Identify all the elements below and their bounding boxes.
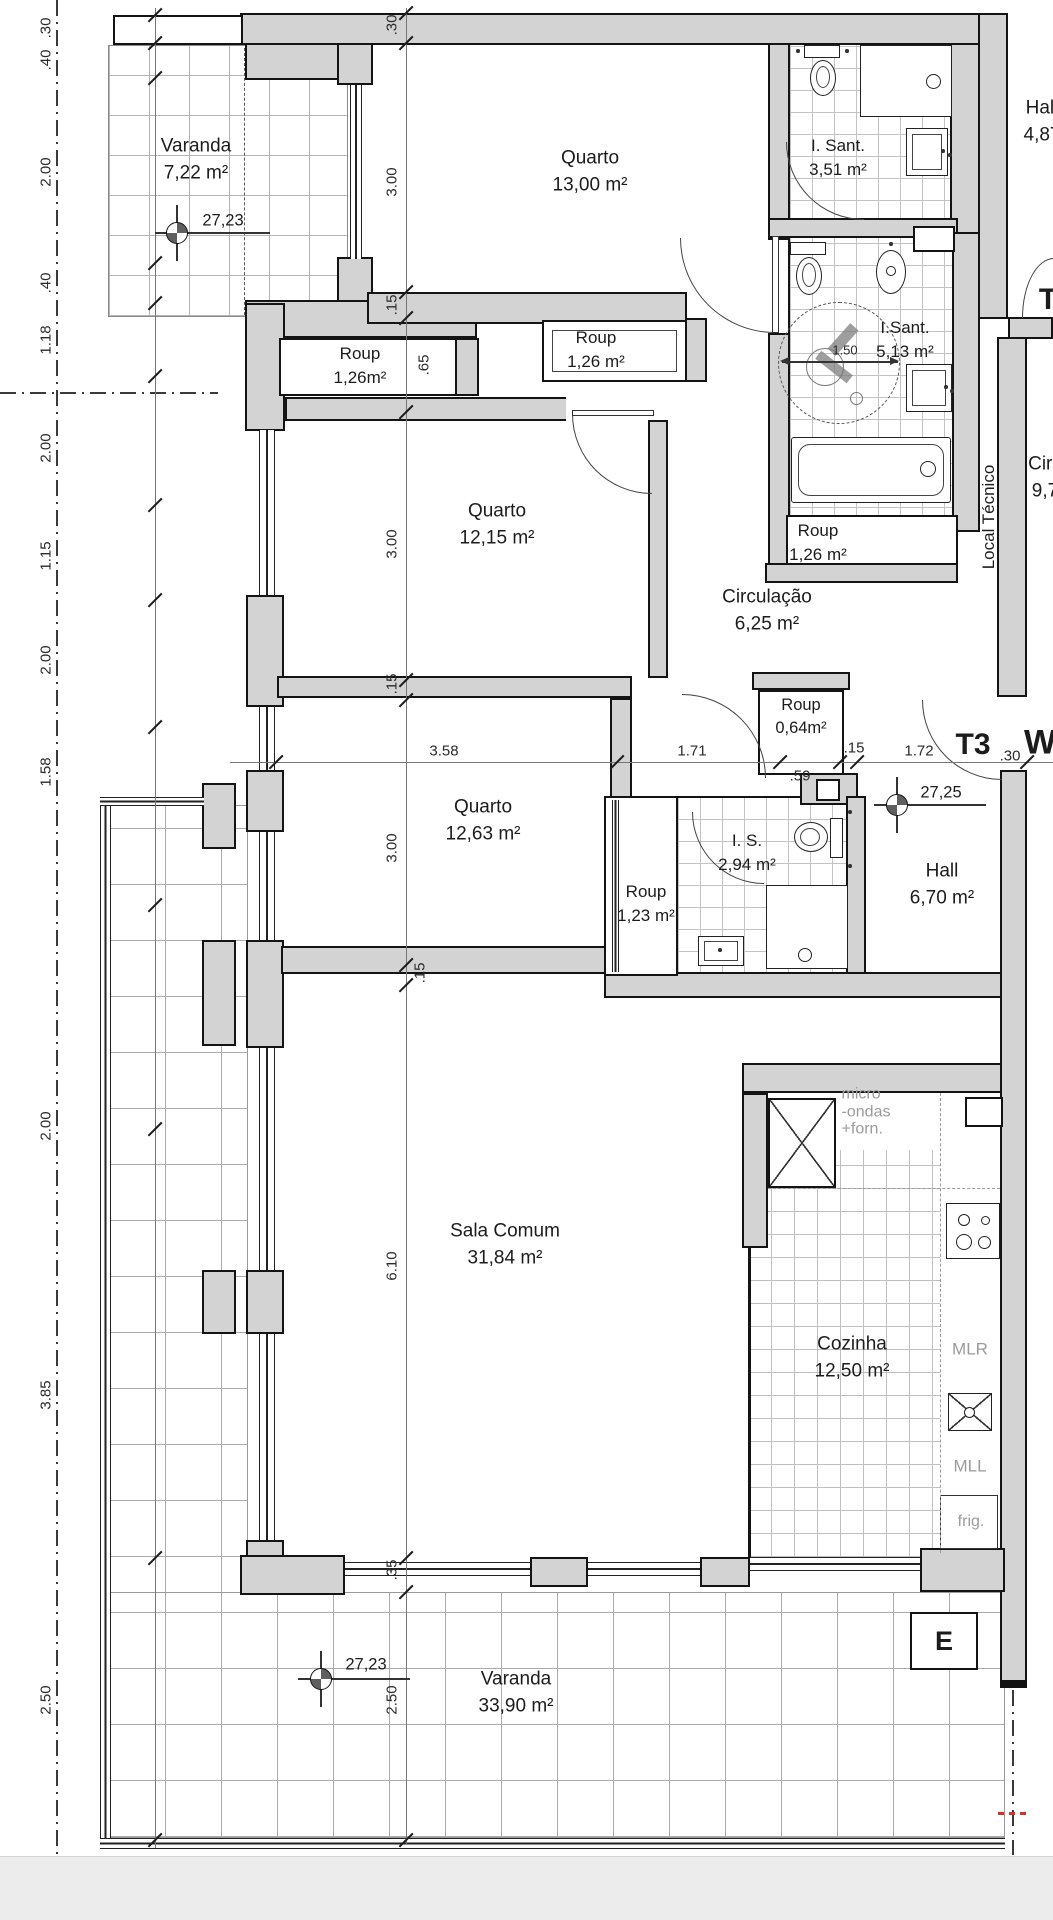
dim-label: 3.85: [38, 1380, 55, 1409]
dim-label: .40: [38, 50, 55, 71]
toilet-tank: [804, 45, 840, 58]
dim-label: 2.00: [38, 1111, 55, 1140]
level-value: 27,23: [345, 1656, 386, 1675]
toilet-tank: [790, 242, 826, 255]
room-label-local-tecnico: Local Técnico: [977, 465, 1001, 570]
room-area: 13,00 m²: [553, 172, 628, 199]
wall: [700, 1557, 750, 1587]
room-area: 3,51 m²: [809, 158, 867, 182]
room-label-varanda-bottom: Varanda 33,90 m²: [479, 1666, 554, 1719]
dim-label: 2.50: [38, 1685, 55, 1714]
room-area: 0,64m²: [775, 717, 826, 740]
dim-label: 1.15: [38, 541, 55, 570]
window: [259, 707, 275, 770]
room-area: 1,26 m²: [567, 350, 625, 374]
window: [588, 1562, 700, 1576]
wall: [246, 940, 284, 1048]
counter-dashed-line: [768, 1188, 1000, 1189]
room-name: Quarto: [460, 498, 535, 525]
bidet-drain: [886, 266, 896, 276]
kitchen-column-crossed: [768, 1098, 836, 1188]
wall: [277, 676, 632, 698]
room-label-varanda-top: Varanda 7,22 m²: [161, 133, 231, 186]
room-label-isant-351: I. Sant. 3,51 m²: [809, 134, 867, 182]
label-line: -ondas: [842, 1103, 891, 1121]
toilet-bowl-inner: [816, 66, 830, 88]
parapet: [100, 1838, 1005, 1849]
room-area: 5,13 m²: [876, 340, 934, 364]
room-area: 7,22 m²: [161, 160, 231, 187]
micro-ondas-label: micro -ondas +forn.: [842, 1086, 891, 1139]
arrowhead: [780, 357, 789, 365]
axis-line: [1012, 1690, 1014, 1855]
wall: [240, 1555, 345, 1595]
shower-drain: [926, 74, 941, 89]
window: [345, 1562, 530, 1576]
dim-label: .30: [384, 15, 401, 36]
room-name: Sala Comum: [450, 1218, 560, 1245]
room-label-quarto-1215: Quarto 12,15 m²: [460, 498, 535, 551]
kitchen-sala-boundary: [748, 1247, 751, 1557]
room-name: Roup: [775, 694, 826, 717]
dim-label: 3.00: [384, 529, 401, 558]
faucet: [718, 948, 722, 952]
wall: [920, 1548, 1005, 1592]
door-arc: [682, 694, 766, 778]
room-label-quarto-13: Quarto 13,00 m²: [553, 145, 628, 198]
room-name: I. S.: [718, 829, 776, 853]
room-name: Circulação: [722, 584, 812, 611]
unit-label-t3: T3: [955, 728, 990, 762]
elevator-label: E: [927, 1612, 961, 1670]
pilaster: [202, 940, 236, 1046]
level-value: 27,23: [202, 212, 243, 231]
room-name: Quarto: [553, 145, 628, 172]
pilaster: [202, 783, 236, 849]
axis-line: [0, 392, 218, 394]
room-area: 12,50 m²: [815, 1358, 890, 1385]
door-arc: [572, 414, 652, 494]
toilet-bowl-inner: [800, 828, 820, 846]
niche: [913, 226, 955, 252]
room-area: 1,23 m²: [617, 904, 675, 928]
dim-label: .35: [384, 1560, 401, 1581]
burner: [981, 1216, 990, 1225]
level-value: 27,25: [920, 784, 961, 803]
washer-label: MLR: [952, 1341, 988, 1360]
bathtub-drain: [920, 461, 936, 477]
window: [259, 430, 275, 595]
terrace-bottom-floor: [108, 1592, 1005, 1838]
room-name: I.Sant.: [876, 316, 934, 340]
dim-label: 3.58: [429, 743, 458, 760]
room-label-circulacao: Circulação 6,25 m²: [722, 584, 812, 637]
stove: [946, 1203, 1000, 1259]
wall: [742, 1093, 768, 1248]
dim-label: .15: [384, 295, 401, 316]
fixture-dot: [845, 49, 849, 53]
room-label-roup-mid: Roup 1,26 m²: [567, 326, 625, 374]
room-label-roup-bath: Roup 1,26 m²: [789, 519, 847, 567]
wall: [685, 318, 707, 382]
wall: [952, 232, 980, 532]
dim-label: 1.50: [832, 343, 857, 358]
fixture-dot: [848, 810, 852, 814]
room-name: Varanda: [479, 1666, 554, 1693]
burner: [956, 1234, 972, 1250]
faucet: [948, 153, 952, 157]
room-label-circ-97: Circ 9,7: [1028, 451, 1053, 504]
unit-label-w: W: [1024, 724, 1053, 763]
wall-cap: [1000, 1680, 1027, 1688]
wall: [246, 1270, 284, 1334]
faucet: [941, 149, 945, 153]
wall: [1008, 317, 1053, 339]
wall: [752, 672, 850, 690]
dim-label: 1.72: [904, 743, 933, 760]
room-area: 6,25 m²: [722, 611, 812, 638]
room-name: Cozinha: [815, 1331, 890, 1358]
room-name: Quarto: [446, 794, 521, 821]
room-area: 12,63 m²: [446, 821, 521, 848]
room-label-quarto-1263: Quarto 12,63 m²: [446, 794, 521, 847]
window: [259, 832, 275, 940]
niche: [965, 1097, 1003, 1127]
sink-inner: [912, 134, 942, 170]
dim-label: .40: [38, 273, 55, 294]
dim-line-left: [155, 8, 156, 1848]
room-name: Roup: [567, 326, 625, 350]
room-label-cozinha: Cozinha 12,50 m²: [815, 1331, 890, 1384]
parapet: [100, 797, 204, 806]
room-area: 1,26 m²: [789, 543, 847, 567]
window: [750, 1557, 920, 1571]
room-area: 9,7: [1028, 478, 1053, 505]
kitchen-sink-drain: [964, 1407, 975, 1418]
door-leaf: [572, 410, 654, 416]
niche: [816, 779, 840, 801]
room-area: 33,90 m²: [479, 1693, 554, 1720]
dim-label: .15: [412, 963, 429, 984]
room-name: Circ: [1028, 451, 1053, 478]
dim-label: .65: [416, 355, 433, 376]
window: [350, 85, 362, 259]
room-label-hall-487: Hall 4,87: [1024, 95, 1053, 148]
wall: [281, 946, 613, 974]
window: [259, 1334, 275, 1540]
wall: [337, 43, 373, 85]
burner: [958, 1214, 970, 1226]
parapet: [100, 798, 111, 1846]
fixture-dot: [889, 242, 893, 246]
fridge-label: frig.: [958, 1513, 985, 1531]
dim-label: 1.18: [38, 325, 55, 354]
burner: [978, 1236, 991, 1249]
room-area: 12,15 m²: [460, 525, 535, 552]
wall: [846, 796, 866, 976]
balcony-dashed-line: [244, 48, 245, 315]
faucet: [944, 385, 948, 389]
dim-label: 3.00: [384, 167, 401, 196]
room-label-roup-123: Roup 1,23 m²: [617, 880, 675, 928]
dim-label: 2.00: [38, 157, 55, 186]
dim-label: 3.00: [384, 833, 401, 862]
wall: [530, 1557, 588, 1587]
room-name: Roup: [789, 519, 847, 543]
dim-label: .59: [790, 768, 811, 785]
dim-line-horizontal: [230, 762, 1053, 763]
room-name: Hall: [1024, 95, 1053, 122]
fixture-dot: [796, 49, 800, 53]
label-line: micro: [842, 1086, 891, 1104]
room-label-hall-670: Hall 6,70 m²: [910, 858, 974, 911]
room-label-roup-064: Roup 0,64m²: [775, 694, 826, 740]
dim-label: 6.10: [384, 1251, 401, 1280]
dim-label: .15: [844, 740, 865, 757]
red-marks: [998, 1812, 1030, 1815]
level-marker: [886, 794, 908, 816]
room-area: 6,70 m²: [910, 885, 974, 912]
fixture-dot: [848, 864, 852, 868]
room-name: Local Técnico: [977, 465, 1001, 570]
counter-dashed-line: [940, 1093, 941, 1553]
dim-label: 1.71: [677, 743, 706, 760]
dim-label: .30: [1000, 748, 1021, 765]
room-area: 4,87: [1024, 122, 1053, 149]
wall: [950, 43, 980, 235]
floor-plan: 1.50: [0, 0, 1053, 1920]
dishwasher-label: MLL: [953, 1458, 986, 1477]
page-margin-strip: [0, 1856, 1053, 1920]
faucet: [950, 389, 954, 393]
room-label-isant-513: I.Sant. 5,13 m²: [876, 316, 934, 364]
wall: [455, 338, 479, 396]
level-marker: [310, 1668, 332, 1690]
axis-line: [56, 0, 58, 1855]
sink-inner: [912, 370, 946, 406]
window: [259, 1048, 275, 1270]
door-leaf: [772, 236, 779, 333]
room-label-sala-comum: Sala Comum 31,84 m²: [450, 1218, 560, 1271]
dim-line-center: [406, 8, 407, 1844]
dim-label: 2.00: [38, 645, 55, 674]
toilet-bowl-inner: [802, 263, 816, 287]
wall: [997, 337, 1027, 697]
room-label-is-294: I. S. 2,94 m²: [718, 829, 776, 877]
dim-label: .15: [384, 674, 401, 695]
room-name: Varanda: [161, 133, 231, 160]
wall: [246, 770, 284, 832]
wheelchair-wheel-icon: [850, 392, 863, 405]
level-marker: [166, 222, 188, 244]
dim-label: 2.00: [38, 433, 55, 462]
wall: [240, 13, 980, 45]
wall: [245, 43, 350, 80]
room-name: Roup: [617, 880, 675, 904]
wall: [978, 13, 1008, 319]
dim-label: 2.50: [384, 1685, 401, 1714]
dim-label: 1.58: [38, 757, 55, 786]
room-area: 2,94 m²: [718, 853, 776, 877]
label-line: +forn.: [842, 1121, 891, 1139]
room-area: 31,84 m²: [450, 1245, 560, 1272]
room-name: Roup: [334, 342, 387, 366]
shower-drain: [798, 948, 812, 962]
room-name: I. Sant.: [809, 134, 867, 158]
parapet: [113, 15, 243, 45]
wall: [610, 698, 632, 798]
room-area: 1,26m²: [334, 366, 387, 390]
room-name: Hall: [910, 858, 974, 885]
unit-label-t-fragment: T: [1039, 283, 1053, 317]
toilet-tank: [830, 818, 843, 858]
room-label-roup-left: Roup 1,26m²: [334, 342, 387, 390]
pilaster: [202, 1270, 236, 1334]
dim-label: .30: [38, 18, 55, 39]
